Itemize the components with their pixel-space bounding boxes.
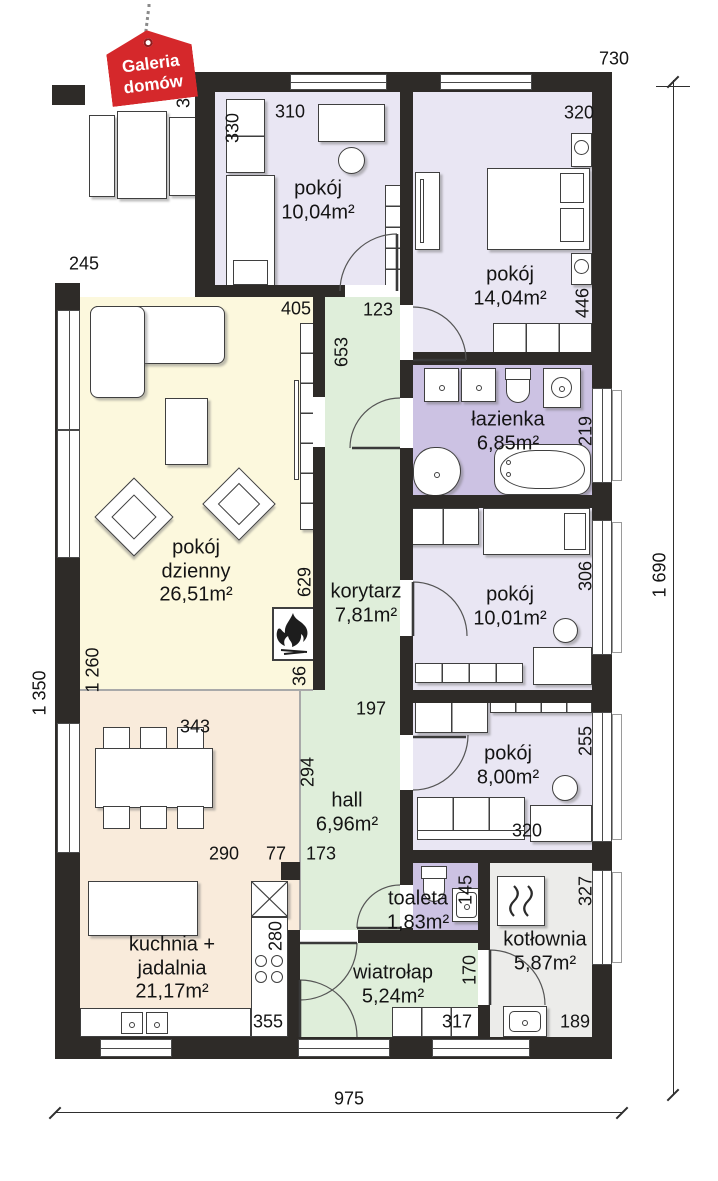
room-area: 7,81m²	[306, 604, 426, 628]
dim-kitchen-width: 343	[180, 717, 210, 738]
room-name: pokój	[455, 583, 565, 607]
room-label-pokoj-8-00: pokój 8,00m²	[453, 742, 563, 789]
room-name: kuchnia + jadalnia	[120, 934, 224, 981]
dim-r1004-width: 310	[275, 102, 305, 123]
dim-r1404-width: 320	[564, 103, 594, 124]
dim-r800-width: 320	[512, 821, 542, 842]
dim-r800-height: 255	[576, 726, 597, 756]
room-name: wiatrołap	[333, 961, 453, 985]
room-area: 1,83m²	[363, 911, 473, 935]
dim-hall-top-width: 197	[356, 699, 386, 720]
door-arc	[350, 398, 400, 448]
dim-kitchen-bottom: 355	[253, 1012, 283, 1033]
logo-tag-icon: Galeria domów	[104, 25, 198, 107]
dim-line-bottom	[55, 1112, 622, 1113]
room-name: pokój	[453, 742, 563, 766]
room-area: 10,04m²	[263, 201, 373, 225]
room-label-korytarz: korytarz 7,81m²	[306, 580, 426, 627]
dim-kotlownia-height: 327	[576, 876, 597, 906]
dim-line-right-stub	[656, 86, 690, 87]
dim-kotlownia-sink: 189	[560, 1012, 590, 1033]
dim-kitchen-width2: 290	[209, 844, 239, 865]
room-area: 14,04m²	[455, 287, 565, 311]
room-area: 6,96m²	[297, 813, 397, 837]
dim-hall-width: 173	[306, 844, 336, 865]
dim-right-total: 1 690	[650, 552, 671, 597]
room-label-lazienka: łazienka 6,85m²	[448, 408, 568, 455]
room-name: pokój dzienny	[148, 537, 244, 584]
dim-wiatrolap-height: 170	[460, 955, 481, 985]
dim-r1001-height: 306	[576, 561, 597, 591]
dim-korytarz-width: 123	[363, 300, 393, 321]
dim-line-right	[673, 80, 674, 1095]
room-label-kuchnia: kuchnia + jadalnia 21,17m²	[120, 934, 224, 1005]
room-area: 5,87m²	[485, 952, 605, 976]
room-name: kotłownia	[485, 928, 605, 952]
room-name: łazienka	[448, 408, 568, 432]
room-name: toaleta	[363, 887, 473, 911]
dim-wardrobe-width: 317	[442, 1012, 472, 1033]
dim-living-height: 1 260	[83, 647, 104, 692]
door-arc	[340, 234, 397, 291]
room-name: hall	[297, 789, 397, 813]
dim-overall-top: 730	[599, 49, 629, 70]
dim-hall-height: 294	[298, 757, 319, 787]
room-name: korytarz	[306, 580, 426, 604]
dim-living-width: 405	[281, 299, 311, 320]
dim-overall-bottom: 975	[334, 1089, 364, 1110]
room-label-wiatrolap: wiatrołap 5,24m²	[333, 961, 453, 1008]
room-label-pokoj-14-04: pokój 14,04m²	[455, 263, 565, 310]
room-label-pokoj-10-04: pokój 10,04m²	[263, 177, 373, 224]
room-area: 8,00m²	[453, 766, 563, 790]
dim-r1404-height: 446	[573, 288, 594, 318]
corner-cabinet-x	[252, 882, 287, 916]
door-arc	[413, 307, 466, 360]
room-area: 6,85m²	[448, 432, 568, 456]
dim-counter-height: 280	[266, 921, 287, 951]
room-label-pokoj-10-01: pokój 10,01m²	[455, 583, 565, 630]
dim-seg-77: 77	[266, 844, 286, 865]
room-name: pokój	[455, 263, 565, 287]
room-area: 26,51m²	[148, 584, 244, 608]
room-label-kotlownia: kotłownia 5,87m²	[485, 928, 605, 975]
dim-terrace-width: 245	[69, 254, 99, 275]
dim-korytarz-height: 653	[332, 337, 353, 367]
galeria-domow-logo: Galeria domów	[108, 30, 194, 102]
dim-left-total: 1 350	[30, 670, 51, 715]
room-area: 10,01m²	[455, 607, 565, 631]
room-label-toaleta: toaleta 1,83m²	[363, 887, 473, 934]
room-area: 5,24m²	[333, 985, 453, 1009]
floor-plan: 730 340 310 330 320 446 245 405 123 653 …	[0, 0, 718, 1181]
dim-lazienka-height: 219	[576, 416, 597, 446]
fireplace-flame-icon	[277, 613, 308, 647]
room-label-pokoj-dzienny: pokój dzienny 26,51m²	[148, 537, 244, 608]
room-area: 21,17m²	[120, 981, 224, 1005]
room-name: pokój	[263, 177, 373, 201]
dim-r1004-height: 330	[223, 113, 244, 143]
fireplace-log-icon	[281, 650, 307, 654]
dim-wall-stub: 36	[290, 666, 311, 686]
room-label-hall: hall 6,96m²	[297, 789, 397, 836]
logo-hole-icon	[143, 38, 153, 48]
boiler-icon	[510, 886, 532, 916]
